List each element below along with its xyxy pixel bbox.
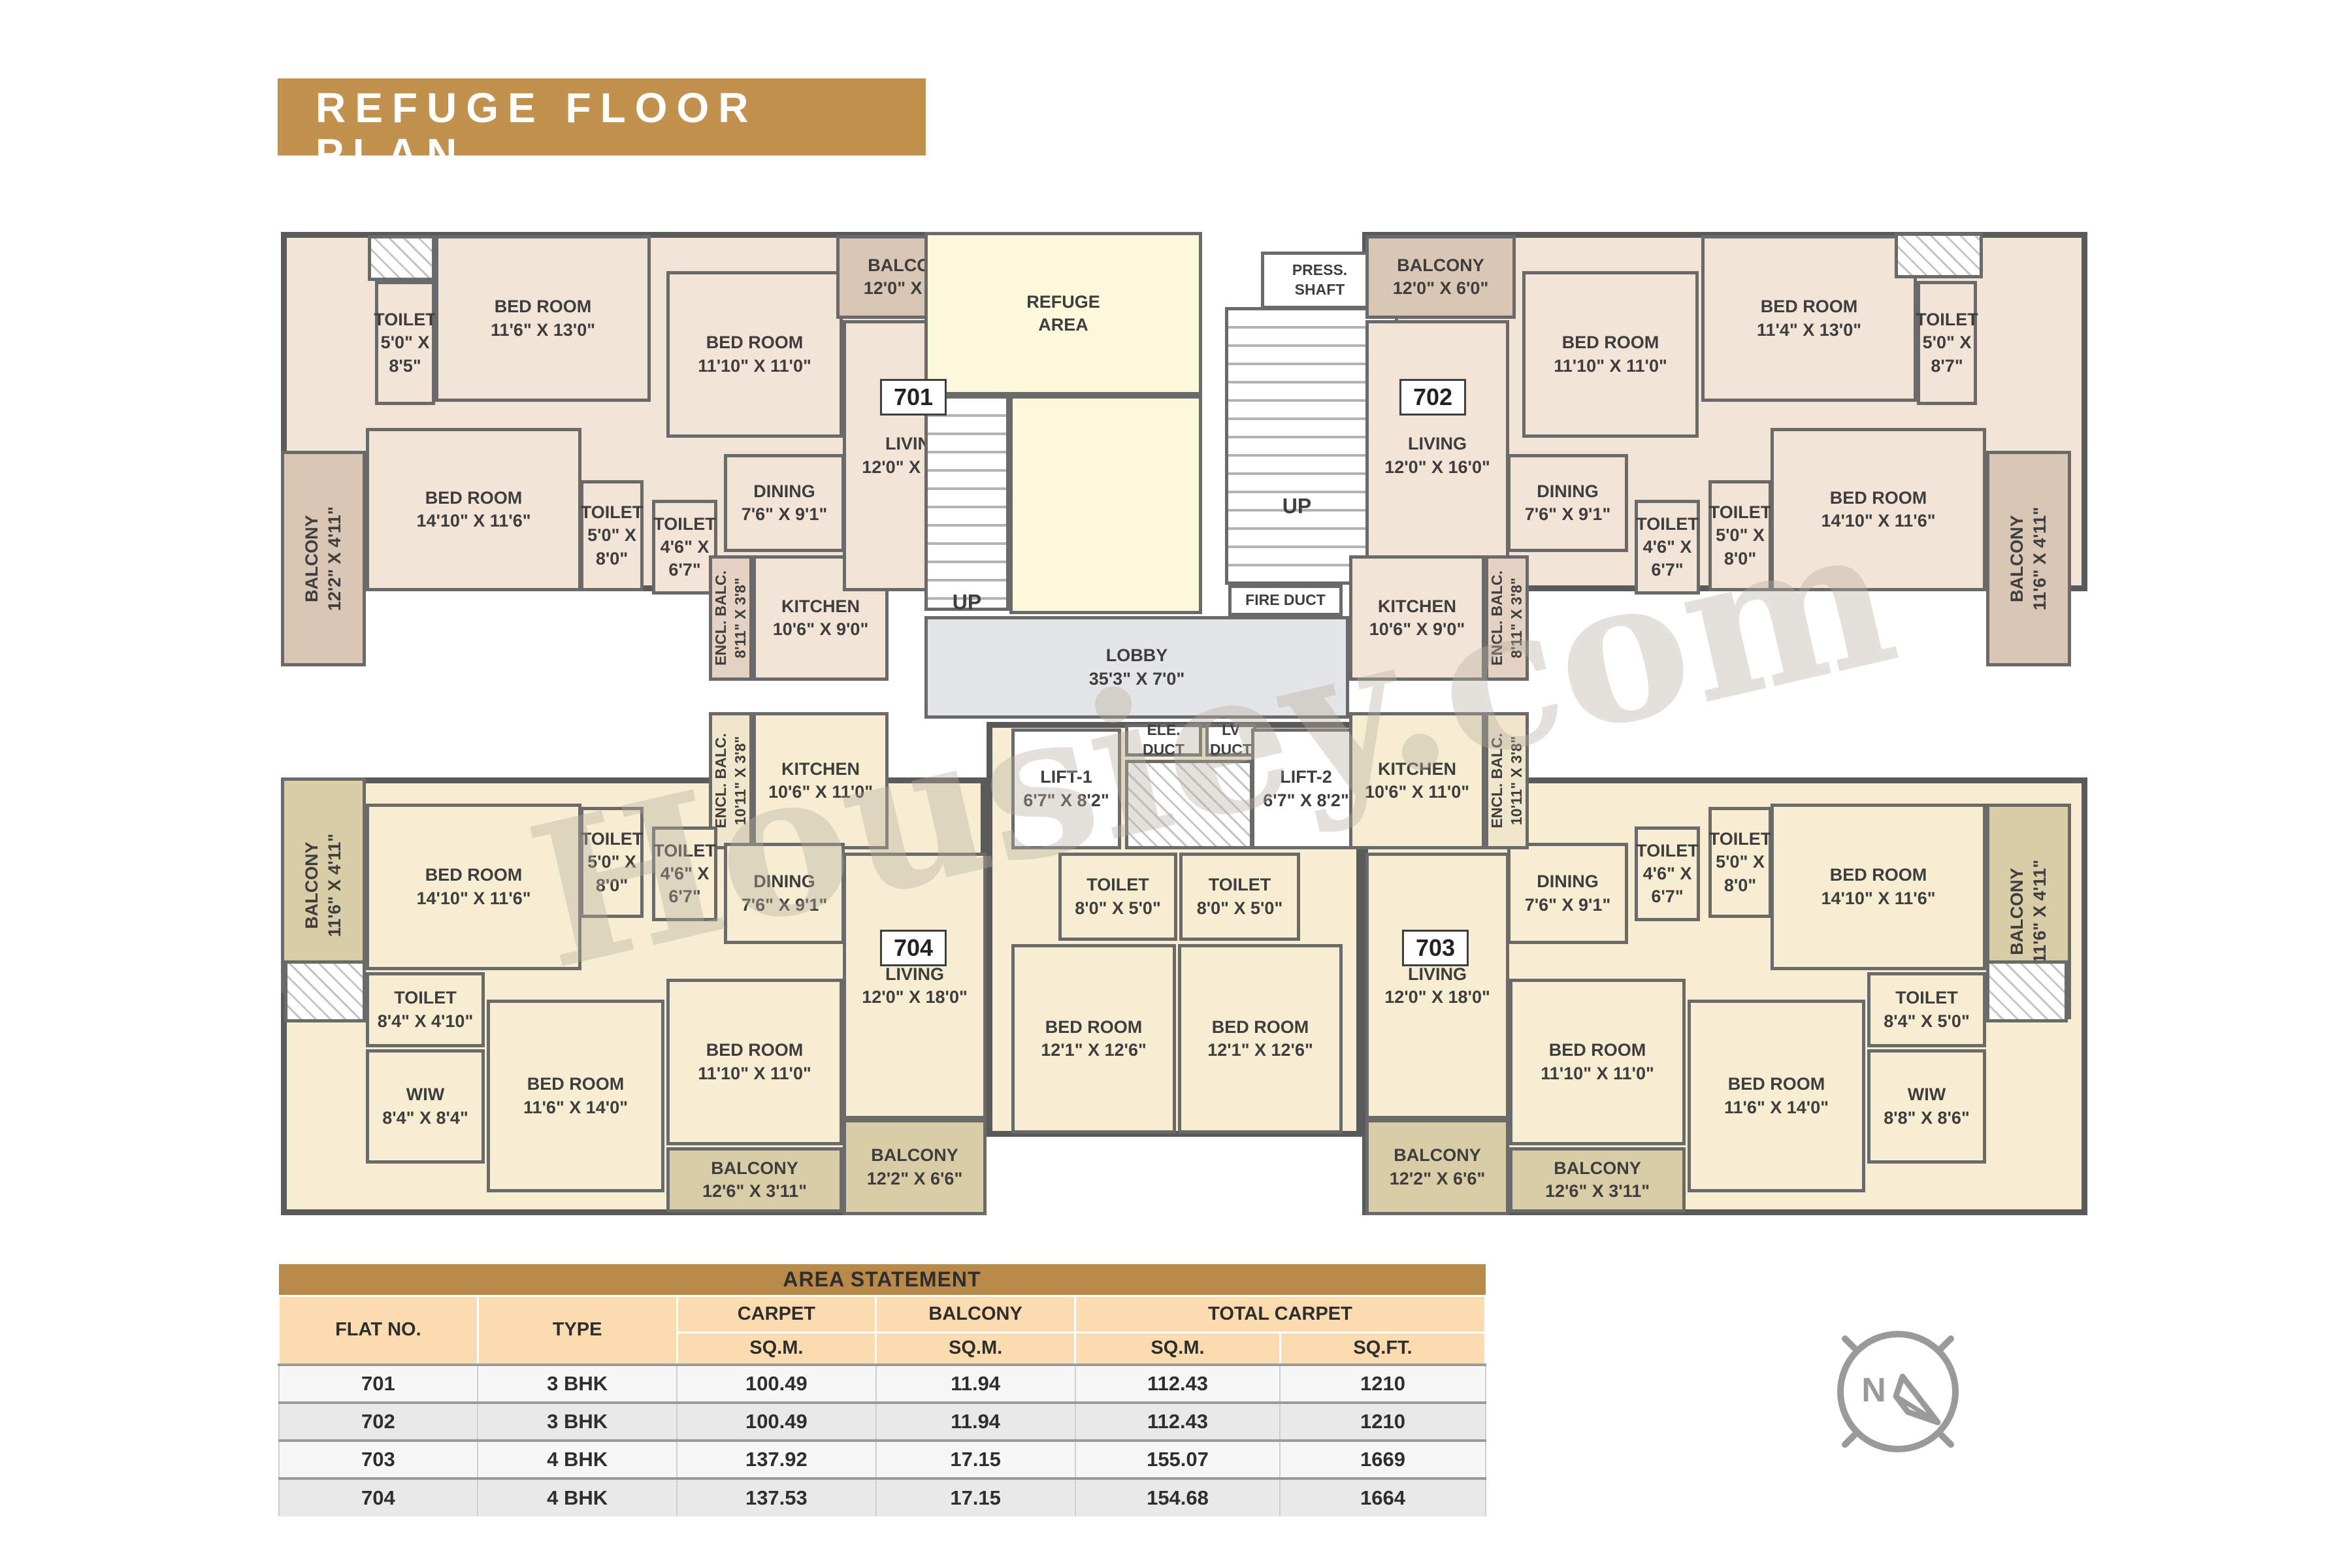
table-cell: 703: [279, 1441, 478, 1478]
table-row: 7034 BHK137.9217.15155.071669: [279, 1441, 1486, 1478]
balcony-704-bottom: BALCONY12'6" X 3'11": [666, 1147, 843, 1213]
toilet-703-d: TOILET8'4" X 5'0": [1867, 972, 1986, 1047]
shaft-top-right: [1895, 233, 1983, 278]
dining-704: DINING7'6" X 9'1": [724, 843, 845, 944]
table-cell: 17.15: [876, 1478, 1075, 1516]
lift-2: LIFT-26'7" X 8'2": [1251, 728, 1361, 849]
toilet-704-d: TOILET8'4" X 4'10": [366, 972, 485, 1047]
page-title-main: REFUGE FLOOR PLAN: [278, 78, 926, 177]
toilet-701-c: TOILET4'6" X 6'7": [652, 500, 717, 595]
table-cell: 1664: [1280, 1478, 1485, 1516]
toilet-701-b: TOILET5'0" X 8'0": [580, 480, 644, 591]
table-cell: 155.07: [1075, 1441, 1281, 1478]
col-subheader-balcony-sqm: SQ.M.: [876, 1332, 1075, 1365]
table-row: 7044 BHK137.5317.15154.681664: [279, 1478, 1486, 1516]
living-702: LIVING12'0" X 16'0": [1365, 320, 1509, 591]
table-cell: 1210: [1280, 1403, 1485, 1441]
col-header-type: TYPE: [478, 1296, 677, 1365]
encl-balc-701: ENCL. BALC.8'11" X 3'8": [709, 555, 753, 681]
bedroom-703-c: BED ROOM11'6" X 14'0": [1688, 1000, 1865, 1192]
living-704: LIVING12'0" X 18'0": [843, 853, 987, 1119]
table-cell: 4 BHK: [478, 1441, 677, 1478]
col-subheader-total-sqft: SQ.FT.: [1280, 1332, 1485, 1365]
page-title-sub: (7th floor): [278, 177, 926, 203]
table-cell: 704: [279, 1478, 478, 1516]
lv-duct: LV DUCT: [1205, 724, 1256, 757]
flat-badge-704: 704: [880, 930, 947, 966]
balcony-703-bottom2: BALCONY12'2" X 6'6": [1365, 1119, 1509, 1215]
toilet-702-a: TOILET5'0" X 8'7": [1917, 281, 1977, 405]
shaft-top-left: [368, 235, 435, 281]
col-header-flat-no: FLAT NO.: [279, 1296, 478, 1365]
table-cell: 1210: [1280, 1365, 1485, 1403]
balcony-703-bottom: BALCONY12'6" X 3'11": [1509, 1147, 1686, 1213]
table-cell: 112.43: [1075, 1365, 1281, 1403]
kitchen-704: KITCHEN10'6" X 11'0": [753, 712, 889, 849]
flat-badge-701: 701: [880, 379, 947, 416]
table-cell: 17.15: [876, 1441, 1075, 1478]
refuge-area: REFUGEAREA: [924, 232, 1202, 395]
table-cell: 4 BHK: [478, 1478, 677, 1516]
area-statement-table: AREA STATEMENT FLAT NO. TYPE CARPET BALC…: [278, 1264, 1486, 1516]
bedroom-704-b: BED ROOM11'6" X 14'0": [487, 1000, 664, 1192]
col-header-carpet: CARPET: [677, 1296, 876, 1332]
lobby: LOBBY35'3" X 7'0": [924, 616, 1349, 719]
bedroom-704-d: BED ROOM12'1" X 12'6": [1011, 944, 1176, 1134]
living-703: LIVING12'0" X 18'0": [1365, 853, 1509, 1119]
toilet-702-b: TOILET5'0" X 8'0": [1708, 480, 1772, 591]
balcony-701-left: BALCONY12'2" X 4'11": [281, 451, 366, 666]
col-header-total-carpet: TOTAL CARPET: [1075, 1296, 1486, 1332]
toilet-703-a: TOILET4'6" X 6'7": [1635, 826, 1700, 921]
toilet-701-a: TOILET5'0" X 8'5": [375, 281, 435, 405]
table-cell: 11.94: [876, 1403, 1075, 1441]
col-subheader-total-sqm: SQ.M.: [1075, 1332, 1281, 1365]
kitchen-703: KITCHEN10'6" X 11'0": [1349, 712, 1485, 849]
toilet-703-common: TOILET8'0" X 5'0": [1179, 853, 1300, 941]
col-header-balcony: BALCONY: [876, 1296, 1075, 1332]
compass: N: [1823, 1316, 1973, 1470]
dining-703: DINING7'6" X 9'1": [1507, 843, 1628, 944]
bedroom-704-c: BED ROOM11'10" X 11'0": [666, 979, 843, 1145]
refuge-area-lower: [1009, 395, 1202, 614]
table-cell: 701: [279, 1365, 478, 1403]
up-label-2: UP: [1282, 495, 1311, 519]
encl-balc-703: ENCL. BALC.10'11" X 3'8": [1485, 712, 1529, 849]
fire-duct: FIRE DUCT: [1228, 585, 1343, 616]
dining-702: DINING7'6" X 9'1": [1507, 454, 1628, 552]
bedroom-703-b: BED ROOM11'10" X 11'0": [1509, 979, 1686, 1145]
bedroom-702-master: BED ROOM14'10" X 11'6": [1771, 428, 1986, 591]
table-cell: 100.49: [677, 1403, 876, 1441]
balcony-702-top: BALCONY12'0" X 6'0": [1365, 235, 1516, 319]
table-cell: 11.94: [876, 1365, 1075, 1403]
dining-701: DINING7'6" X 9'1": [724, 454, 845, 552]
table-cell: 100.49: [677, 1365, 876, 1403]
bedroom-701-c: BED ROOM11'10" X 11'0": [666, 271, 843, 438]
table-cell: 137.92: [677, 1441, 876, 1478]
table-row: 7023 BHK100.4911.94112.431210: [279, 1403, 1486, 1441]
table-cell: 702: [279, 1403, 478, 1441]
col-subheader-carpet-sqm: SQ.M.: [677, 1332, 876, 1365]
table-cell: 112.43: [1075, 1403, 1281, 1441]
flat-badge-703: 703: [1402, 930, 1469, 966]
toilet-704-a: TOILET5'0" X 8'0": [580, 807, 644, 918]
bedroom-701-b: BED ROOM11'6" X 13'0": [435, 235, 651, 402]
encl-balc-702: ENCL. BALC.8'11" X 3'8": [1485, 555, 1529, 681]
table-cell: 3 BHK: [478, 1365, 677, 1403]
page-title: REFUGE FLOOR PLAN (7th floor): [278, 78, 926, 155]
flat-badge-702: 702: [1399, 379, 1466, 416]
toilet-704-common: TOILET8'0" X 5'0": [1058, 853, 1177, 941]
balcony-704-bottom2: BALCONY12'2" X 6'6": [843, 1119, 987, 1215]
compass-icon: N: [1823, 1316, 1973, 1467]
kitchen-702: KITCHEN10'6" X 9'0": [1349, 555, 1485, 681]
toilet-704-b: TOILET4'6" X 6'7": [652, 826, 717, 921]
bedroom-702-a: BED ROOM11'10" X 11'0": [1522, 271, 1699, 438]
bedroom-702-b: BED ROOM11'4" X 13'0": [1701, 235, 1917, 402]
wiw-703: WIW8'8" X 8'6": [1867, 1049, 1986, 1164]
table-cell: 137.53: [677, 1478, 876, 1516]
up-label-1: UP: [953, 591, 981, 615]
table-cell: 1669: [1280, 1441, 1485, 1478]
table-cell: 3 BHK: [478, 1403, 677, 1441]
shaft-left: [284, 960, 366, 1022]
shaft-right: [1986, 960, 2068, 1022]
wiw-704: WIW8'4" X 8'4": [366, 1049, 485, 1164]
bedroom-703-d: BED ROOM12'1" X 12'6": [1178, 944, 1343, 1134]
bedroom-701-master: BED ROOM14'10" X 11'6": [366, 428, 581, 591]
staircase-1: [924, 395, 1009, 611]
toilet-702-c: TOILET4'6" X 6'7": [1635, 500, 1700, 595]
ele-duct: ELE. DUCT: [1125, 724, 1202, 757]
lift-1: LIFT-16'7" X 8'2": [1011, 728, 1121, 849]
duct-shaft-middle: [1125, 760, 1253, 849]
bedroom-704-master: BED ROOM14'10" X 11'6": [366, 804, 581, 970]
press-shaft: PRESS.SHAFT: [1261, 252, 1379, 309]
toilet-703-b: TOILET5'0" X 8'0": [1708, 807, 1772, 918]
table-row: 7013 BHK100.4911.94112.431210: [279, 1365, 1486, 1403]
bedroom-703-master: BED ROOM14'10" X 11'6": [1771, 804, 1986, 970]
balcony-702-right: BALCONY11'6" X 4'11": [1986, 451, 2071, 666]
table-title: AREA STATEMENT: [279, 1264, 1486, 1296]
compass-north-label: N: [1861, 1371, 1886, 1409]
table-cell: 154.68: [1075, 1478, 1281, 1516]
